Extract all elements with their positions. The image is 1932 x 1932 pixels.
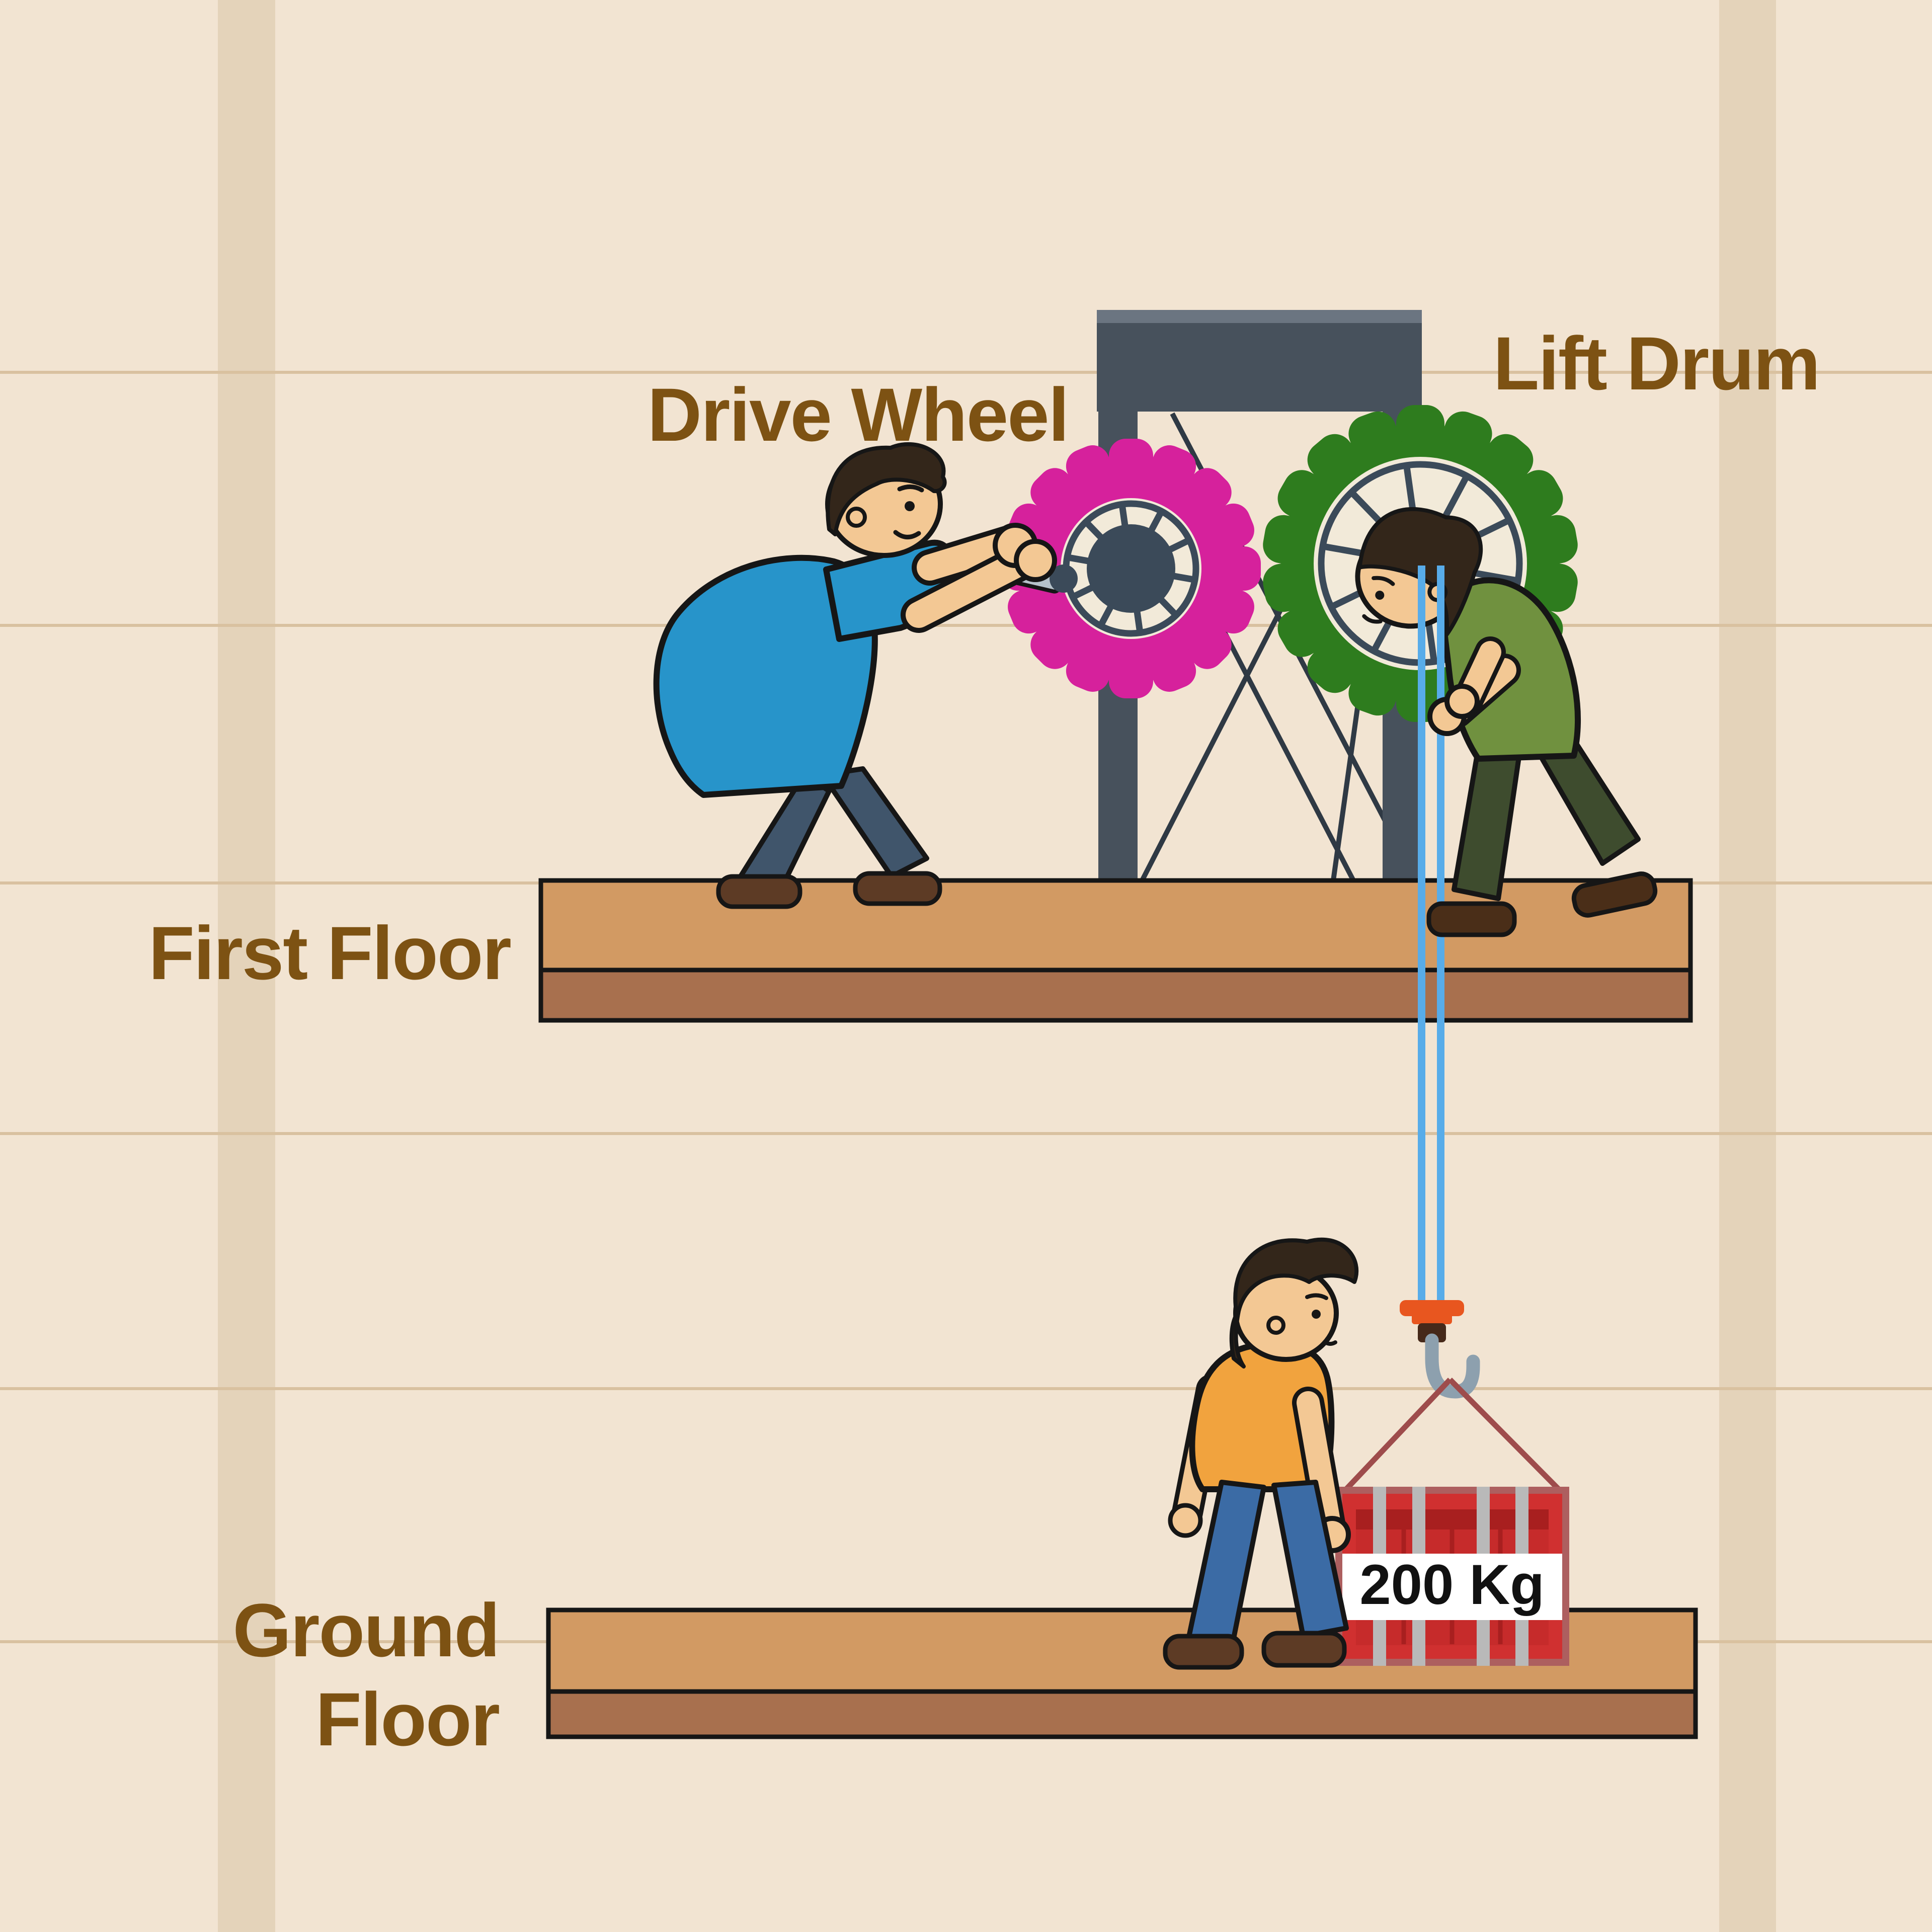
worker3-back-shoe (1165, 1636, 1242, 1667)
worker3-ear (1268, 1318, 1283, 1333)
hook-assembly (1400, 1300, 1473, 1392)
ground-floor-label-line2: Floor (232, 1675, 499, 1764)
pulley-cap-step (1412, 1311, 1452, 1324)
first-floor-plank-bottom (541, 970, 1691, 1020)
ground-floor-label: Ground Floor (232, 1586, 499, 1764)
crate-weight-text: 200 Kg (1359, 1553, 1544, 1616)
worker1-head (828, 444, 945, 555)
worker2-fist (1447, 686, 1477, 716)
worker2-front-leg (1454, 749, 1519, 899)
worker1-eye (905, 501, 915, 511)
lift-mechanism-illustration: 200 Kg (0, 0, 1932, 1932)
worker2-front-shoe (1429, 904, 1514, 935)
worker1-front-shoe (855, 873, 940, 904)
worker-ground-floor (1165, 1240, 1356, 1667)
drive-wheel-label: Drive Wheel (648, 371, 1069, 458)
worker-drive-wheel (657, 444, 1055, 907)
rope-left (1418, 566, 1425, 1301)
worker1-back-shoe (718, 876, 800, 907)
worker3-head (1232, 1240, 1356, 1366)
frame-top-beam-highlight (1097, 310, 1422, 323)
load-crate: 200 Kg (1335, 1487, 1569, 1666)
lift-drum-label: Lift Drum (1493, 320, 1820, 407)
worker1-ear (848, 509, 865, 526)
first-floor-plank-top (541, 880, 1691, 970)
worker3-front-shoe (1264, 1633, 1344, 1665)
worker3-eye (1312, 1310, 1321, 1319)
frame-top-beam (1097, 310, 1422, 412)
worker3-mouth (1325, 1342, 1335, 1344)
first-floor-platform (541, 880, 1691, 1020)
ground-floor-plank-bottom (548, 1692, 1696, 1737)
ground-floor-label-line1: Ground (232, 1586, 499, 1675)
first-floor-label: First Floor (148, 910, 511, 997)
